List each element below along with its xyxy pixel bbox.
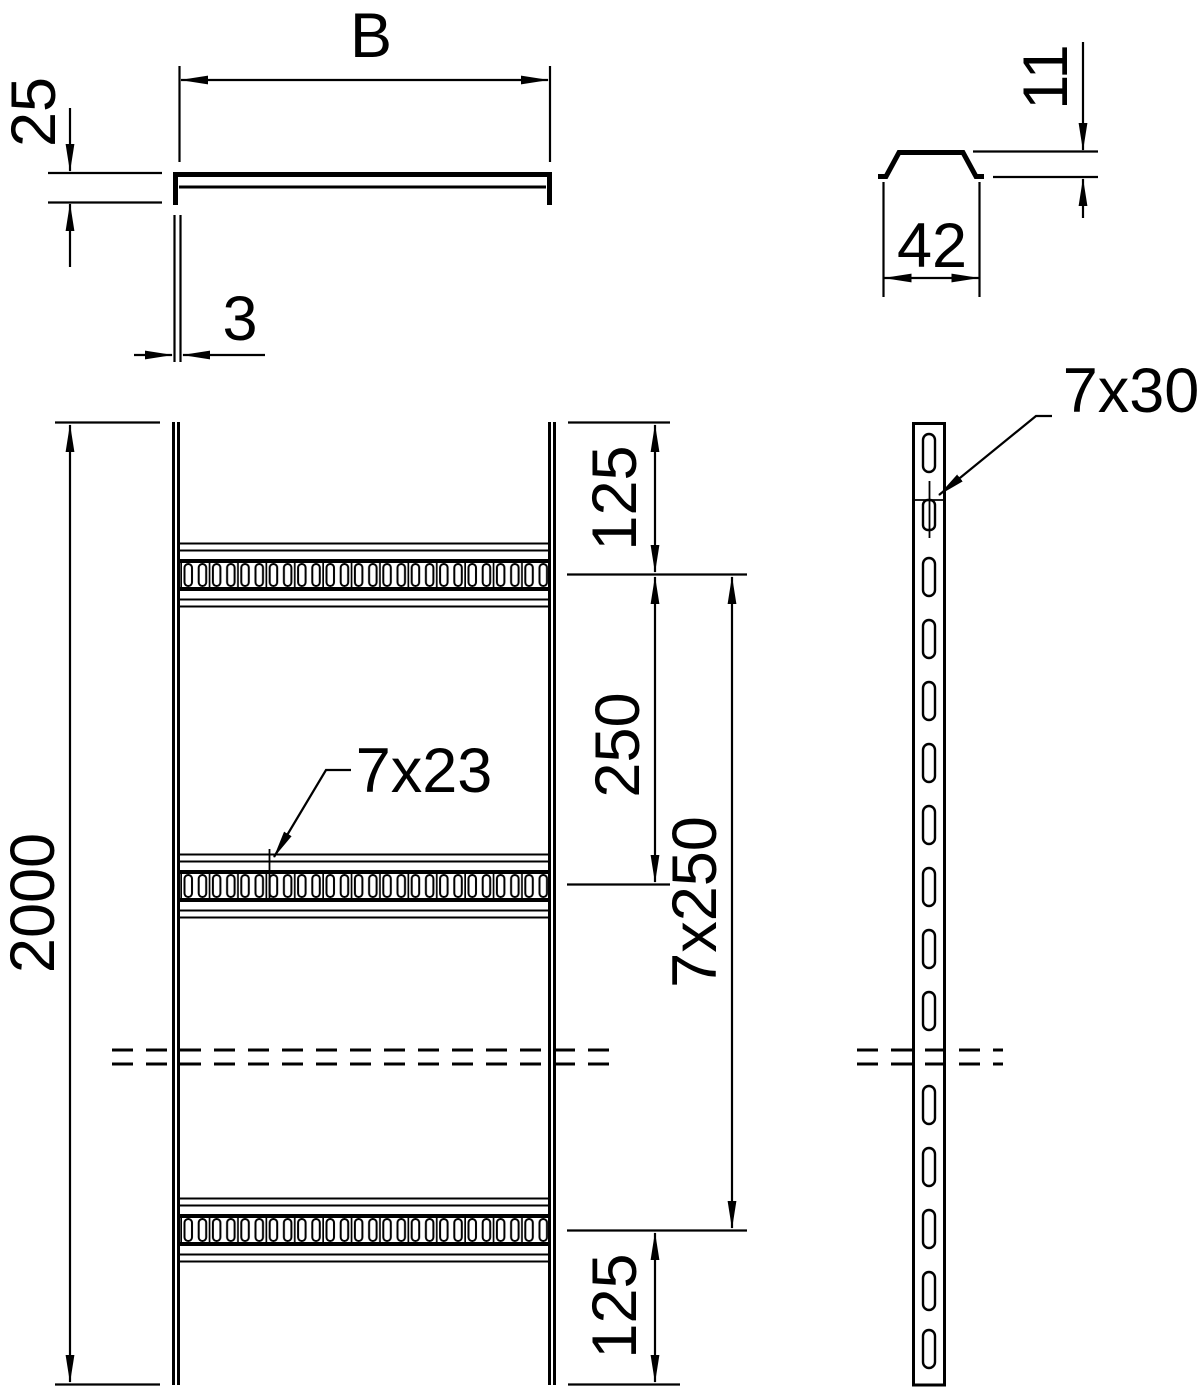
rail-slot xyxy=(923,1330,935,1368)
front-view: 2000 125 250 7x250 125 7x23 xyxy=(0,422,747,1385)
dim-label-bottom-125: 125 xyxy=(580,1253,650,1358)
dim-label-width-42: 42 xyxy=(897,211,967,281)
rung-slot-band xyxy=(180,563,548,588)
dim-label-thickness-3: 3 xyxy=(222,284,257,354)
cable-ladder-technical-drawing: B 25 3 11 42 xyxy=(0,0,1201,1387)
cross-section-extension-lines xyxy=(48,66,550,362)
rail-slot xyxy=(923,620,935,658)
dim-label-height-25: 25 xyxy=(0,77,69,147)
dim-label-height-11: 11 xyxy=(1011,44,1081,109)
technical-drawing-page: B 25 3 11 42 xyxy=(0,0,1201,1387)
rail-slot xyxy=(923,682,935,720)
rung-slot-band xyxy=(180,1218,548,1243)
front-view-break-lines xyxy=(112,1050,618,1064)
rail-slot xyxy=(923,1272,935,1310)
rail-slot xyxy=(923,868,935,906)
cross-section-view: B 25 3 xyxy=(0,1,552,362)
rail-slot xyxy=(923,434,935,472)
rung-profile-outline xyxy=(878,153,984,177)
rail-slot xyxy=(923,930,935,968)
side-view: 7x30 xyxy=(857,356,1199,1385)
rung-edge-lines xyxy=(180,544,548,1262)
rail-slot xyxy=(923,1086,935,1124)
dim-label-top-125: 125 xyxy=(580,445,650,550)
dim-label-overall-2000: 2000 xyxy=(0,833,68,973)
callout-label-7x30: 7x30 xyxy=(1063,356,1200,426)
rail-slot xyxy=(923,806,935,844)
dim-label-total-7x250: 7x250 xyxy=(660,816,730,988)
rung-slot-band xyxy=(180,874,548,899)
dim-label-width-b: B xyxy=(350,1,392,71)
rung-profile-view: 11 42 xyxy=(878,42,1098,297)
rail-slot xyxy=(923,744,935,782)
rail-slot xyxy=(923,992,935,1030)
rung-band-borders xyxy=(180,561,548,1244)
dim-label-pitch-250: 250 xyxy=(583,692,653,797)
rail-slot xyxy=(923,1210,935,1248)
leader-line-7x30 xyxy=(939,416,1052,495)
rail-slot xyxy=(923,1148,935,1186)
callout-label-7x23: 7x23 xyxy=(356,736,493,806)
leader-line-7x23 xyxy=(274,770,351,857)
rail-slot xyxy=(923,558,935,596)
rail-slots xyxy=(923,434,935,1368)
